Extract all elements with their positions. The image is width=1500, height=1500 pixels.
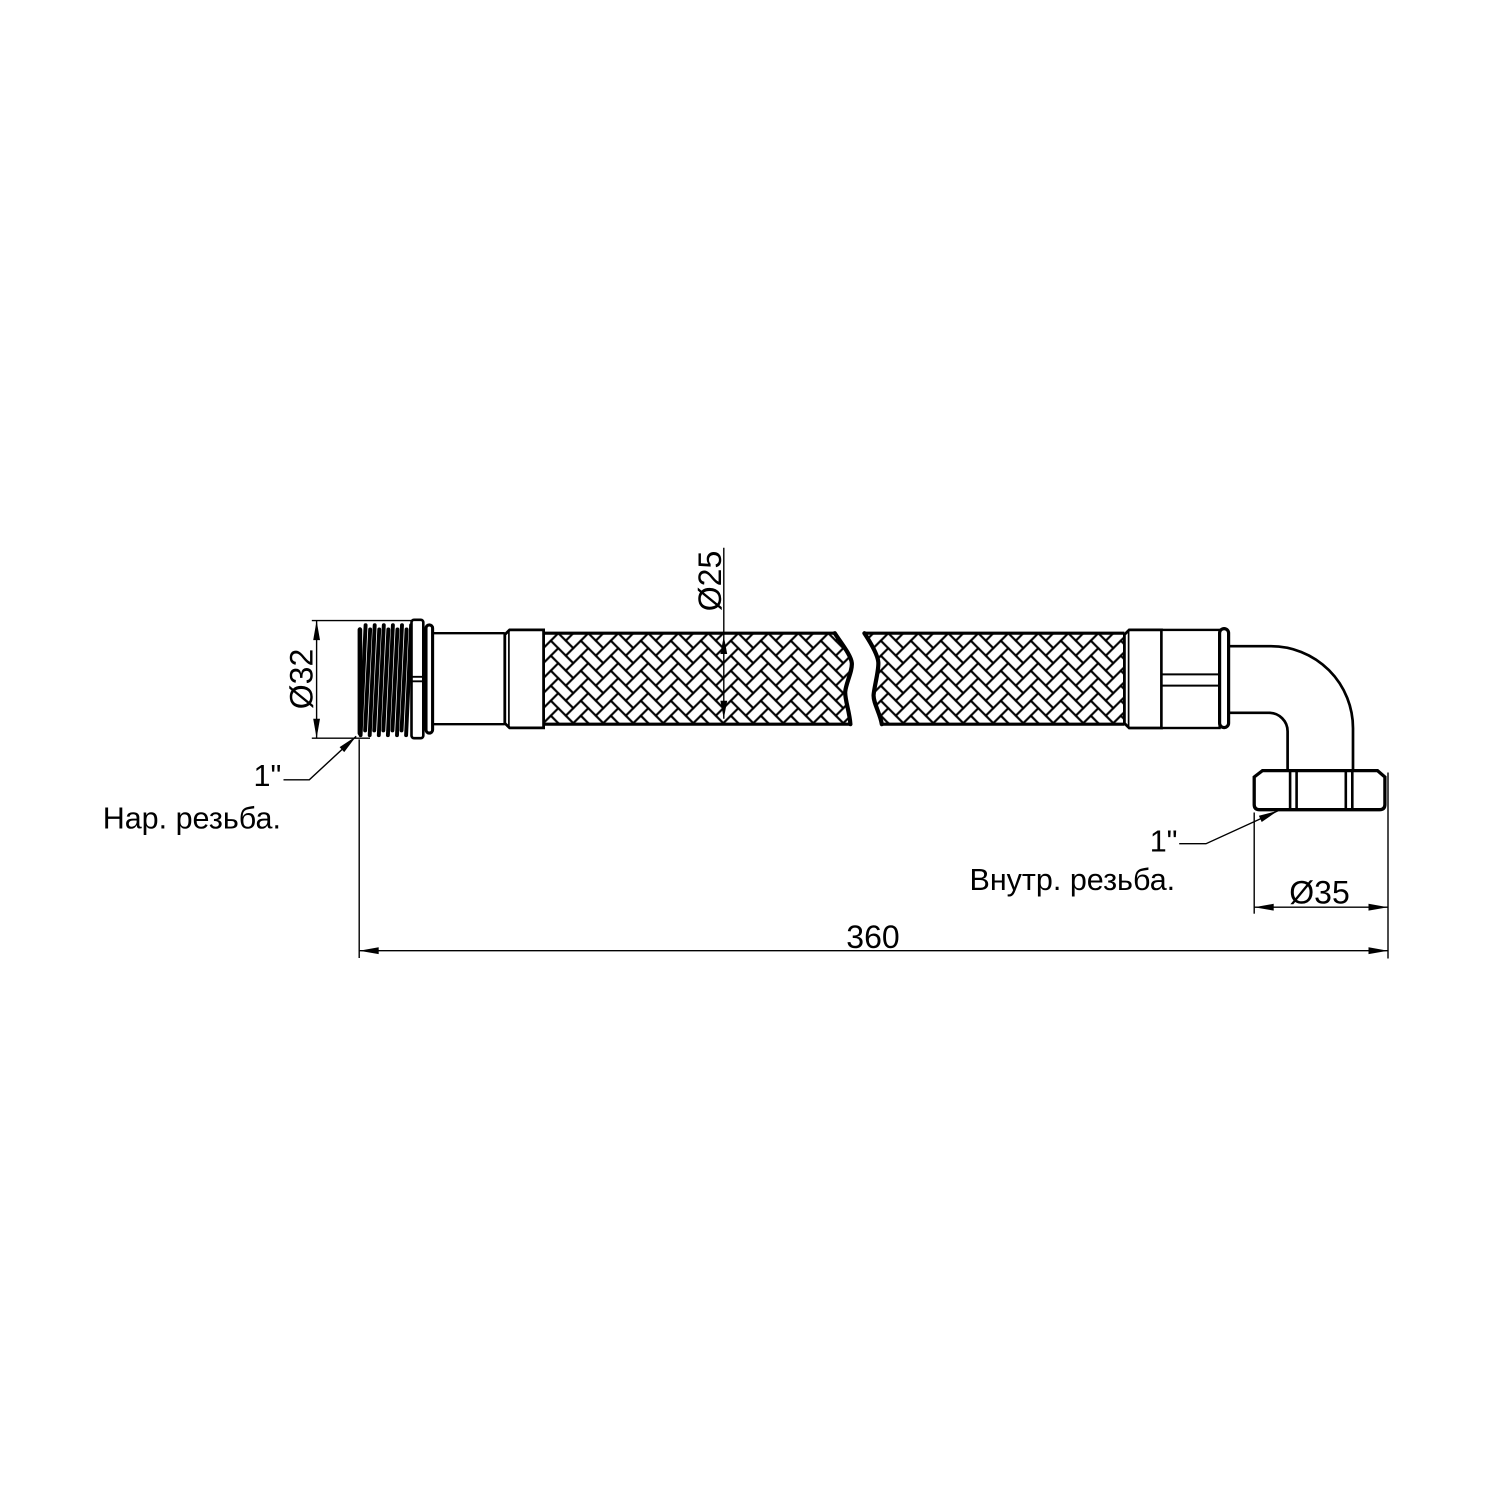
svg-text:Ø25: Ø25 — [692, 551, 728, 611]
svg-text:Внутр. резьба.: Внутр. резьба. — [970, 863, 1176, 897]
svg-text:1": 1" — [254, 759, 282, 793]
svg-text:1": 1" — [1150, 825, 1178, 859]
svg-text:360: 360 — [846, 919, 899, 955]
svg-text:Нар. резьба.: Нар. резьба. — [103, 801, 281, 835]
svg-text:Ø35: Ø35 — [1289, 875, 1349, 911]
svg-text:Ø32: Ø32 — [284, 649, 320, 709]
